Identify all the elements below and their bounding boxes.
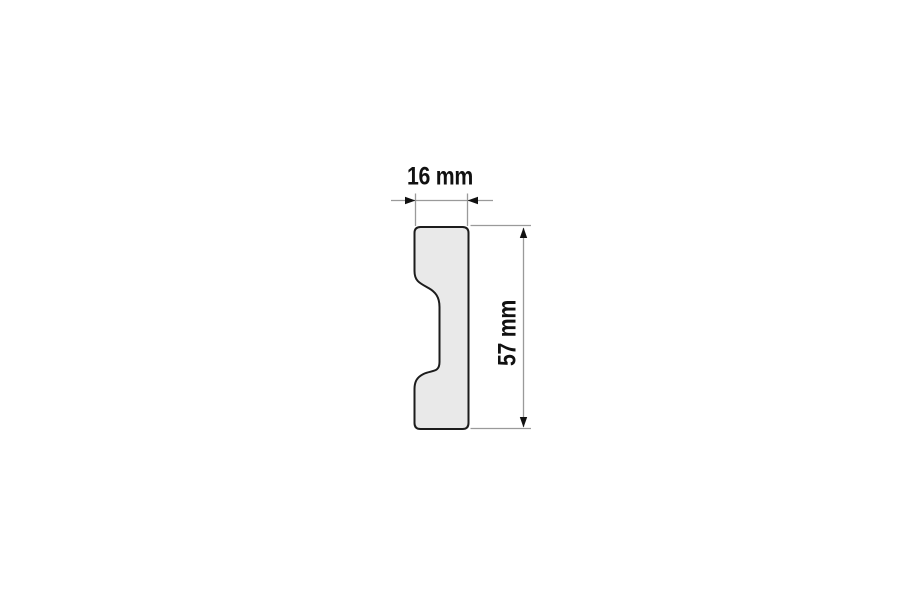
drawing-canvas: 16 mm 57 mm: [0, 0, 900, 600]
width-dimension-label: 16 mm: [407, 162, 473, 190]
height-arrow-down: [520, 417, 527, 428]
width-arrow-left: [405, 197, 416, 204]
height-dimension: 57 mm: [471, 226, 532, 429]
width-arrow-right: [468, 197, 479, 204]
height-dimension-label: 57 mm: [493, 300, 521, 366]
width-dimension: 16 mm: [391, 162, 493, 226]
technical-drawing: 16 mm 57 mm: [0, 0, 900, 600]
profile-cross-section: [415, 227, 469, 429]
height-arrow-up: [520, 228, 527, 239]
